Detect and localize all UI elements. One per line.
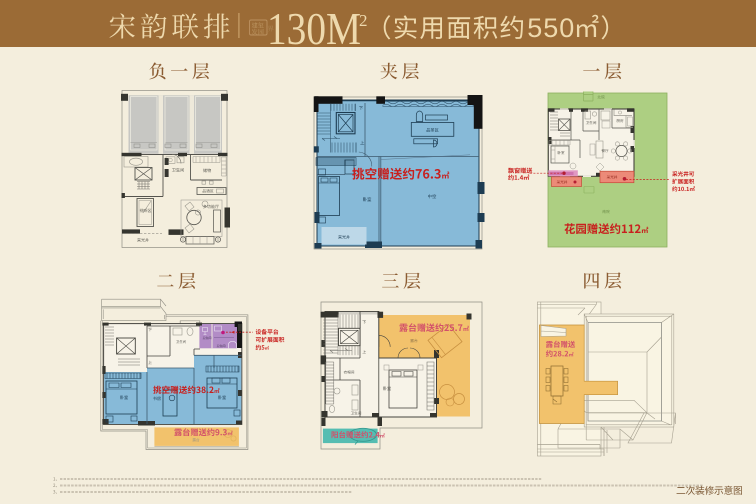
svg-text:2: 2	[359, 11, 368, 30]
svg-text:130M: 130M	[267, 3, 361, 54]
svg-text:550: 550	[527, 13, 575, 43]
